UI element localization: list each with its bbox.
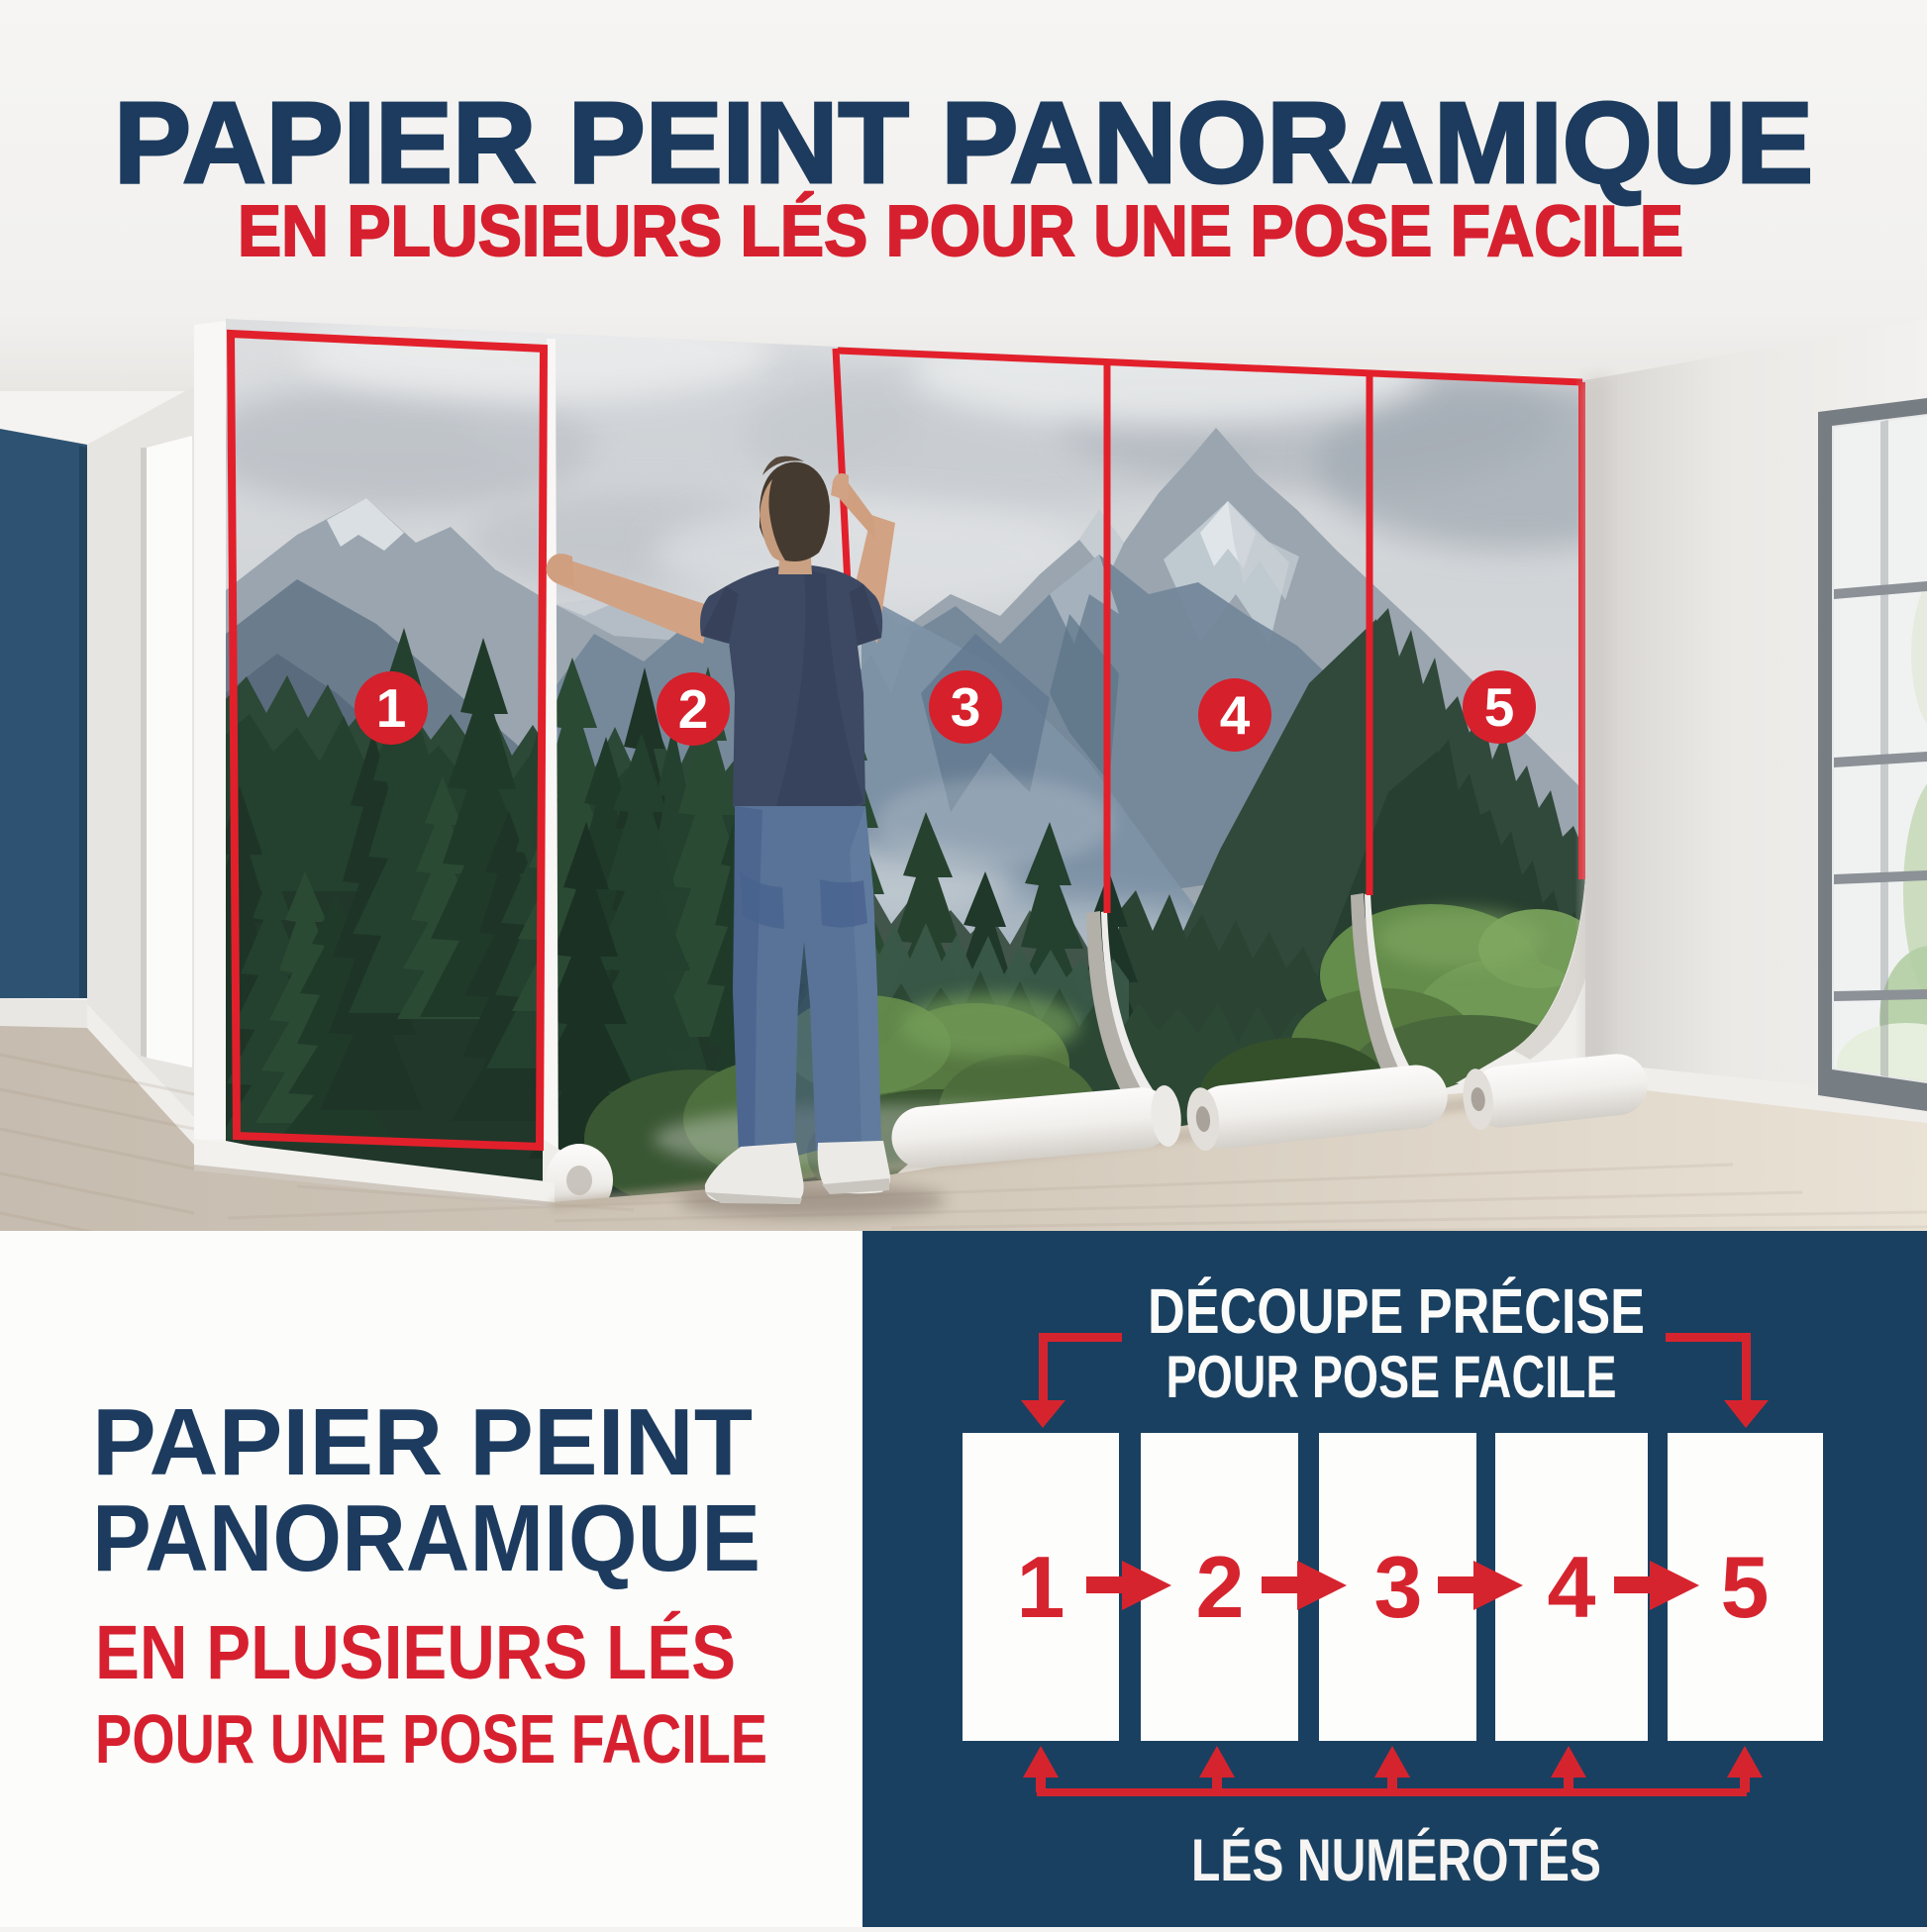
svg-text:1: 1 — [1017, 1538, 1065, 1636]
svg-text:PANORAMIQUE: PANORAMIQUE — [92, 1485, 761, 1591]
svg-text:PAPIER PEINT: PAPIER PEINT — [92, 1389, 753, 1495]
svg-text:POUR UNE POSE FACILE: POUR UNE POSE FACILE — [95, 1700, 767, 1778]
svg-text:DÉCOUPE PRÉCISE: DÉCOUPE PRÉCISE — [1148, 1275, 1645, 1347]
svg-text:EN PLUSIEURS LÉS POUR UNE POSE: EN PLUSIEURS LÉS POUR UNE POSE FACILE — [238, 192, 1683, 271]
svg-text:5: 5 — [1721, 1538, 1770, 1636]
svg-text:POUR POSE FACILE: POUR POSE FACILE — [1166, 1344, 1617, 1410]
svg-text:EN PLUSIEURS LÉS: EN PLUSIEURS LÉS — [95, 1610, 736, 1695]
svg-text:5: 5 — [1484, 676, 1515, 738]
svg-text:3: 3 — [951, 676, 981, 738]
svg-text:4: 4 — [1548, 1538, 1596, 1636]
svg-text:LÉS NUMÉROTÉS: LÉS NUMÉROTÉS — [1191, 1827, 1601, 1893]
svg-text:1: 1 — [376, 677, 407, 739]
svg-text:PAPIER PEINT PANORAMIQUE: PAPIER PEINT PANORAMIQUE — [114, 78, 1813, 207]
svg-text:2: 2 — [1196, 1538, 1245, 1636]
svg-text:3: 3 — [1374, 1538, 1423, 1636]
svg-text:2: 2 — [678, 678, 709, 740]
svg-text:4: 4 — [1220, 684, 1251, 746]
